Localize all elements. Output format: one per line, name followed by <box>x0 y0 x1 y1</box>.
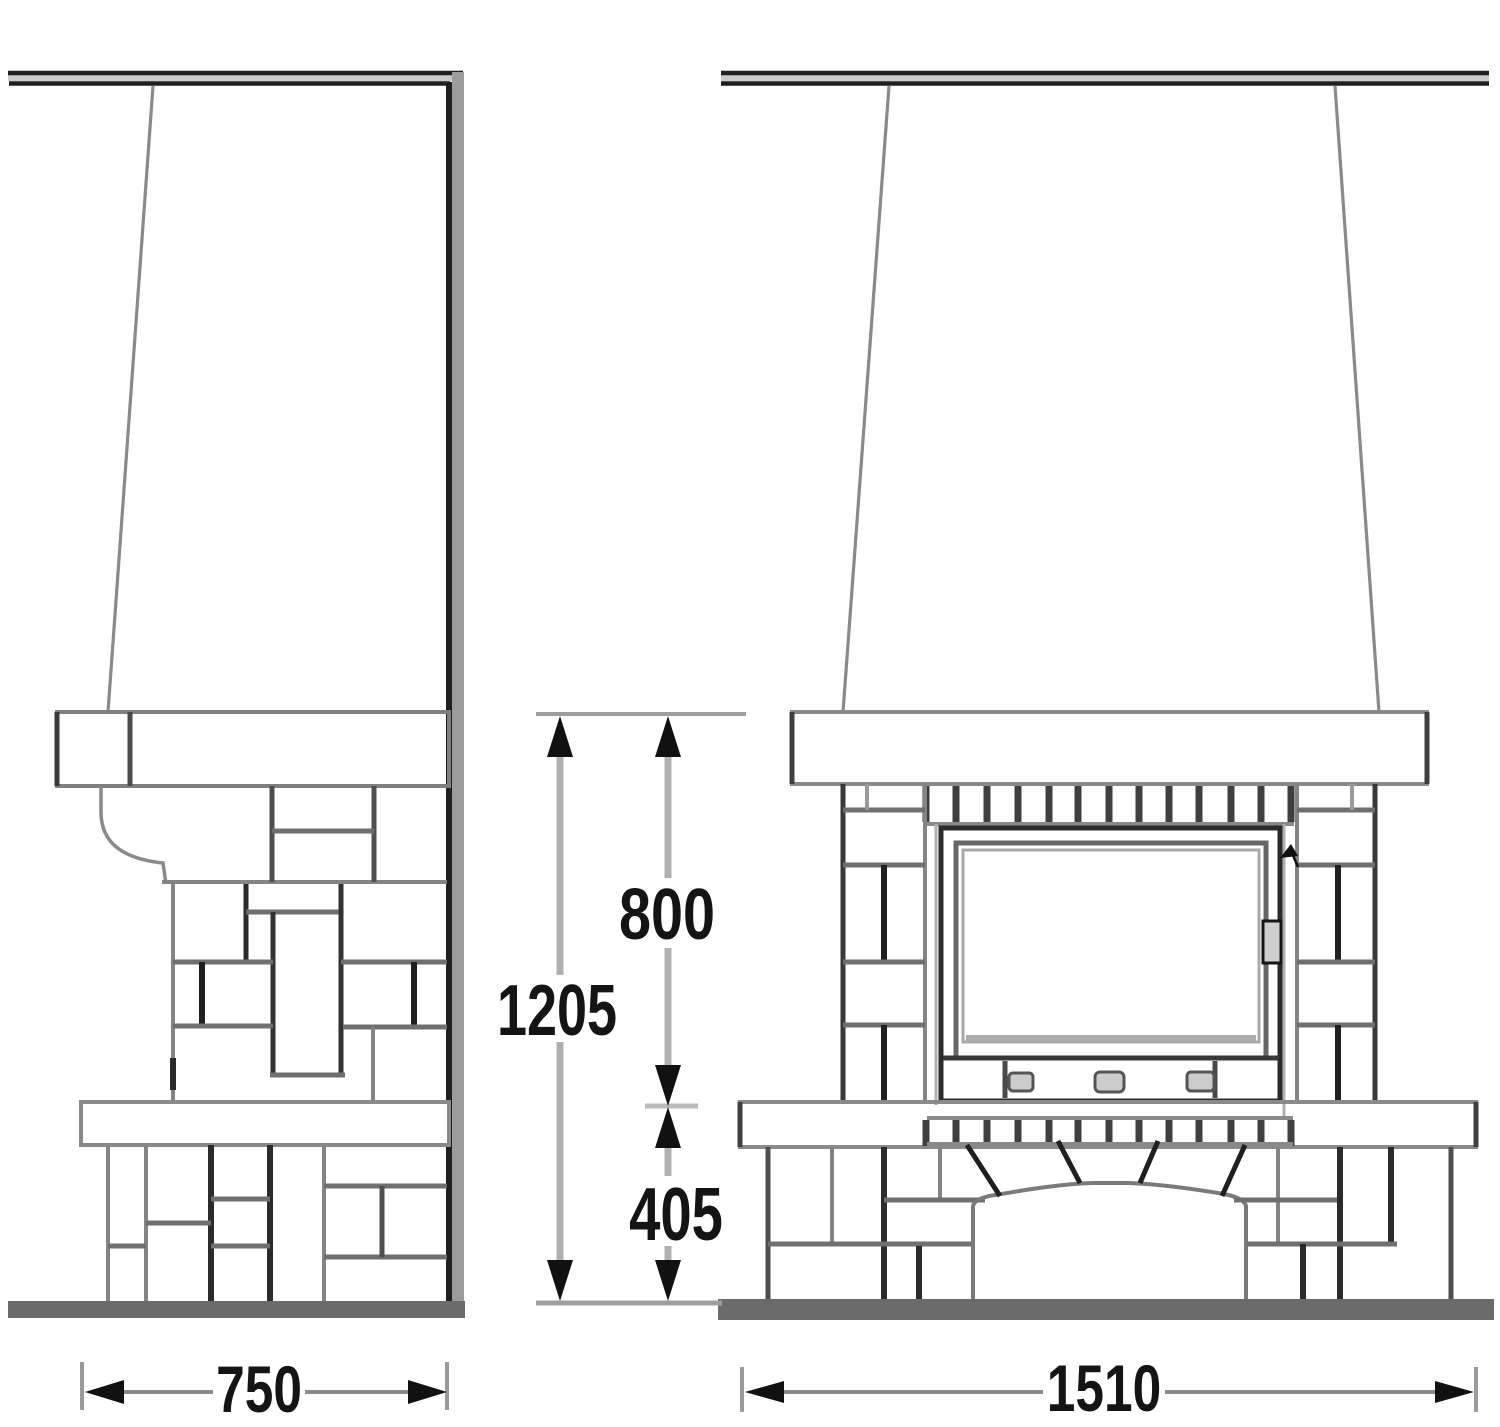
svg-text:405: 405 <box>629 1173 723 1257</box>
svg-text:1205: 1205 <box>497 971 617 1051</box>
svg-text:750: 750 <box>216 1352 302 1427</box>
svg-text:800: 800 <box>619 874 715 955</box>
svg-text:1510: 1510 <box>1047 1351 1161 1426</box>
